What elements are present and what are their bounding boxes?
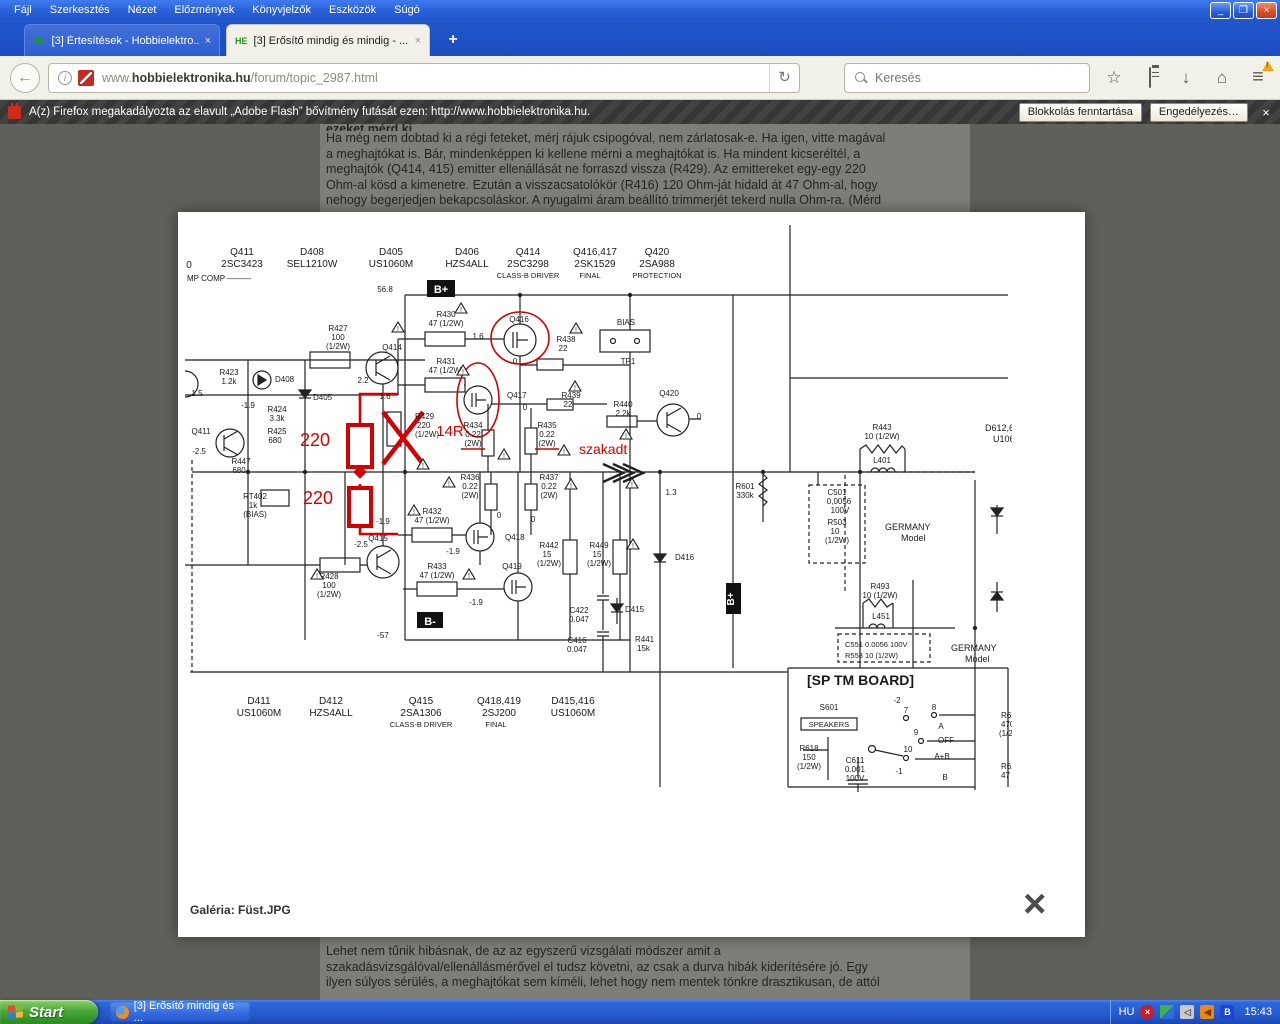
warning-badge-icon — [1262, 61, 1274, 71]
schematic-label: D612,6 — [985, 423, 1012, 433]
schematic-label: Q415 — [368, 534, 388, 543]
schematic-label: Q411 — [192, 427, 212, 436]
bluetooth-icon[interactable]: B — [1220, 1005, 1234, 1019]
schematic-label: B — [942, 773, 947, 782]
forum-text-top: ezeket mérd ki. Ha még nem dobtad ki a r… — [320, 124, 970, 212]
site-favicon-he: HE — [33, 36, 46, 46]
schematic-label: C551 0.0056 100V — [845, 640, 908, 649]
menu-item-2[interactable]: Szerkesztés — [42, 2, 118, 18]
bookmarks-sidebar-icon[interactable] — [1138, 68, 1162, 88]
notification-close-icon[interactable]: × — [1256, 105, 1276, 120]
schematic-label: Q418,419 — [477, 696, 521, 707]
schematic-label: (2W) — [540, 491, 558, 500]
forum-text-line: szakadásvizsgálóval/ellenállásmérővel el… — [326, 960, 970, 976]
language-indicator[interactable]: HU — [1119, 1006, 1135, 1018]
tab-title: [3] Értesítések - Hobbielektro... — [52, 35, 199, 47]
schematic-label: 3.3k — [269, 414, 285, 423]
toolbar-icons: ☆ ↓ ⌂ ≡ — [1102, 66, 1270, 89]
gallery-lightbox: 0Q4112SC3423MP COMP ———D408SEL1210WD405U… — [178, 212, 1085, 937]
schematic-label: CLASS-B DRIVER — [390, 720, 453, 729]
taskbar-clock: 15:43 — [1244, 1006, 1272, 1018]
schematic-label: Model — [965, 654, 990, 664]
schematic-label: R449 — [589, 541, 609, 550]
schematic-label: R438 — [556, 335, 576, 344]
schematic-label: 0 — [497, 511, 502, 520]
schematic-label: 220 — [300, 430, 330, 450]
schematic-label: 47 — [1001, 771, 1010, 780]
schematic-label: 0.22 — [539, 430, 555, 439]
bookmark-star-icon[interactable]: ☆ — [1102, 68, 1126, 88]
warning-glyph: ! — [625, 433, 627, 440]
lightbox-close-icon[interactable]: × — [1023, 884, 1046, 924]
close-window-button[interactable]: × — [1256, 2, 1277, 19]
task-label: [3] Erősítő mindig és ... — [134, 1000, 244, 1024]
schematic-label: (1/2W) — [587, 559, 611, 568]
schematic-label: -1.9 — [376, 517, 390, 526]
schematic-label: 220 — [303, 488, 333, 508]
allow-button[interactable]: Engedélyezés… — [1150, 103, 1248, 122]
schematic-label: 100 — [322, 581, 336, 590]
schematic-label: R433 — [427, 562, 447, 571]
schematic-label: Q411 — [230, 247, 254, 258]
schematic-label: 47 (1/2W) — [419, 571, 454, 580]
tab-title: [3] Erősítő mindig és mindig - ... — [254, 35, 409, 47]
schematic-label: 0 — [531, 515, 536, 524]
schematic-label: (1/2W) — [797, 762, 821, 771]
forum-text-line: Lehet nem tűnik hibásnak, de az az egysz… — [326, 944, 970, 960]
warning-glyph: ! — [462, 369, 464, 376]
schematic-label: Model — [901, 533, 926, 543]
hobbielektronika-favicon — [78, 70, 94, 86]
schematic-label: 100 — [331, 333, 345, 342]
schematic-label: D408 — [275, 375, 295, 384]
schematic-label: 2.2 — [357, 376, 369, 385]
schematic-label: Q420 — [645, 247, 670, 258]
schematic-label: 2SC3423 — [221, 259, 263, 270]
schematic-label: R443 — [872, 423, 892, 432]
schematic-label: FINAL — [579, 271, 600, 280]
schematic-label: -1.9 — [469, 598, 483, 607]
schematic-label: 0.001 — [845, 765, 866, 774]
volume-icon[interactable]: ◁ — [1180, 1005, 1194, 1019]
firefox-icon — [116, 1006, 129, 1019]
schematic-label: 0.047 — [567, 645, 588, 654]
speaker-icon[interactable]: ◀ — [1200, 1005, 1214, 1019]
gallery-caption: Galéria: Füst.JPG — [190, 903, 291, 917]
navigation-toolbar: ← i www.hobbielektronika.hu/forum/topic_… — [0, 56, 1280, 100]
warning-glyph: ! — [570, 483, 572, 490]
schematic-label: R493 — [870, 582, 890, 591]
tab-close-icon[interactable]: × — [205, 35, 211, 47]
security-alert-icon[interactable]: × — [1140, 1005, 1154, 1019]
warning-glyph: ! — [397, 326, 399, 333]
schematic-label: 0.22 — [541, 482, 557, 491]
search-icon — [855, 72, 867, 84]
tab-strip: HE [3] Értesítések - Hobbielektro... × H… — [0, 20, 1280, 56]
forum-text-line: nehogy begerjedjen bekapcsoláskor. A nyu… — [326, 193, 966, 209]
schematic-label: L401 — [873, 456, 891, 465]
minimize-button[interactable]: _ — [1210, 2, 1231, 19]
schematic-label: (1/2W) — [326, 342, 350, 351]
schematic-label: D408 — [300, 247, 324, 258]
page-info-icon[interactable]: i — [58, 71, 72, 85]
menu-item-1[interactable]: Fájl — [6, 2, 40, 18]
menu-item-4[interactable]: Előzmények — [166, 2, 242, 18]
plugin-notification-bar: A(z) Firefox megakadályozta az elavult „… — [0, 100, 1280, 124]
desktop: FájlSzerkesztésNézetElőzményekKönyvjelző… — [0, 0, 1280, 1024]
schematic-label: R428 — [319, 572, 339, 581]
warning-glyph: ! — [632, 543, 634, 550]
schematic-label: B- — [424, 616, 436, 628]
schematic-label: 0 — [186, 260, 192, 271]
schematic-label: TP1 — [621, 357, 636, 366]
schematic-label: R436 — [460, 473, 480, 482]
schematic-label: SEL1210W — [287, 259, 338, 270]
schematic-label: R425 — [267, 427, 287, 436]
back-button[interactable]: ← — [10, 63, 40, 93]
schematic-label: Q416 — [509, 315, 529, 324]
schematic-label: C611 — [846, 756, 865, 765]
schematic-label: R601 — [735, 482, 755, 491]
warning-glyph: ! — [574, 385, 576, 392]
notification-text: A(z) Firefox megakadályozta az elavult „… — [29, 106, 1019, 118]
schematic-label: 14R — [436, 423, 464, 440]
schematic-label: 1k — [249, 501, 258, 510]
new-tab-button[interactable]: + — [440, 28, 466, 52]
schematic-label: Q418 — [505, 533, 525, 542]
schematic-label: -1.9 — [446, 547, 460, 556]
schematic-label: (1/2 — [999, 729, 1012, 738]
menu-item-7[interactable]: Súgó — [386, 2, 428, 18]
warning-glyph: ! — [631, 482, 633, 489]
schematic-label: (2W) — [464, 439, 482, 448]
schematic-label: 47 (1/2W) — [428, 319, 463, 328]
schematic-label: SPEAKERS — [809, 720, 849, 729]
schematic-label: D405 — [379, 247, 403, 258]
search-input[interactable] — [873, 70, 1089, 86]
schematic-label: R437 — [539, 473, 559, 482]
schematic-label: US1060M — [369, 259, 413, 270]
schematic-label: R431 — [436, 357, 456, 366]
schematic-label: [SP TM BOARD] — [807, 672, 914, 688]
forum-text-line: Ha még nem dobtad ki a régi feteket, mér… — [326, 131, 966, 147]
schematic-label: D411 — [247, 696, 271, 707]
warning-glyph: ! — [413, 509, 415, 516]
schematic-label: R434 — [463, 421, 483, 430]
schematic-label: 1.2k — [221, 377, 237, 386]
schematic-label: -2.5 — [192, 447, 206, 456]
graphics-tray-icon[interactable] — [1160, 1005, 1174, 1019]
schematic-label: CLASS-B DRIVER — [497, 271, 560, 280]
schematic-label: HZS4ALL — [309, 708, 353, 719]
schematic-label: (1/2W) — [317, 590, 341, 599]
schematic-label: 2SK1529 — [574, 259, 616, 270]
schematic-label: 8 — [932, 703, 937, 712]
schematic-label: R553 10 (1/2W) — [845, 651, 898, 660]
forum-text-line: ilyen súlyos sérülés, a meghajtókat sem … — [326, 975, 970, 991]
schematic-label: A — [938, 722, 944, 731]
warning-glyph: ! — [448, 481, 450, 488]
schematic-label: 2.2k — [615, 409, 631, 418]
schematic-label: 10 (1/2W) — [862, 591, 897, 600]
warning-glyph: ! — [316, 573, 318, 580]
restore-button[interactable]: ❐ — [1233, 2, 1254, 19]
schematic-label: 2SA988 — [639, 259, 675, 270]
system-tray: HU × ◁ ◀ B 15:43 — [1110, 1000, 1280, 1024]
schematic-label: Q420 — [659, 389, 679, 398]
schematic-label: 0.22 — [465, 430, 481, 439]
schematic-label: BIAS — [617, 318, 635, 327]
warning-glyph: ! — [563, 449, 565, 456]
schematic-label: Q415 — [409, 696, 434, 707]
schematic-label: 56.8 — [377, 285, 393, 294]
schematic-label: R441 — [635, 635, 655, 644]
schematic-label: 220 — [417, 421, 431, 430]
url-bar[interactable]: i www.hobbielektronika.hu/forum/topic_29… — [48, 63, 800, 93]
schematic-label: 0.22 — [462, 482, 478, 491]
schematic-label: R432 — [422, 507, 442, 516]
forum-line-clipped: ezeket mérd ki. — [326, 124, 966, 131]
tab-erosito-active[interactable]: HE [3] Erősítő mindig és mindig - ... × — [226, 24, 430, 56]
schematic-label: D415 — [625, 605, 645, 614]
schematic-label: OFF — [938, 736, 954, 745]
schematic-label: C501 — [827, 488, 847, 497]
schematic-label: MP COMP ——— — [187, 274, 251, 283]
schematic-label: S601 — [820, 703, 839, 712]
schematic-label: 10 — [904, 745, 913, 754]
schematic-label: D405 — [313, 393, 333, 402]
warning-glyph: ! — [503, 453, 505, 460]
forum-text-line: meghajtók (Q414, 415) emitter ellenállás… — [326, 162, 966, 178]
warning-glyph: ! — [575, 327, 577, 334]
schematic-label: 0 — [523, 403, 528, 412]
schematic-label: 22 — [559, 344, 568, 353]
schematic-label: (2W) — [538, 439, 556, 448]
schematic-label: D406 — [455, 247, 479, 258]
schematic-label: 100V — [846, 774, 865, 783]
warning-glyph: ! — [468, 573, 470, 580]
schematic-label: 7 — [904, 706, 909, 715]
schematic-label: 47 (1/2W) — [414, 516, 449, 525]
schematic-label: 1.6 — [472, 332, 484, 341]
schematic-label: 10 (1/2W) — [864, 432, 899, 441]
schematic-label: R439 — [561, 391, 581, 400]
schematic-label: 0 — [697, 412, 702, 421]
schematic-label: -2.5 — [354, 540, 368, 549]
schematic-svg: 0Q4112SC3423MP COMP ———D408SEL1210WD405U… — [185, 222, 1012, 792]
schematic-image: 0Q4112SC3423MP COMP ———D408SEL1210WD405U… — [185, 222, 1012, 792]
schematic-label: -57 — [377, 631, 389, 640]
schematic-label: C416 — [567, 636, 587, 645]
windows-logo-icon — [8, 1004, 24, 1020]
menu-item-6[interactable]: Eszközök — [321, 2, 384, 18]
window-controls: _ ❐ × — [1210, 2, 1277, 19]
schematic-label: -1 — [895, 767, 903, 776]
schematic-label: Q419 — [502, 562, 522, 571]
schematic-label: -1.9 — [241, 401, 255, 410]
schematic-label: -2 — [893, 696, 901, 705]
schematic-label: 2SC3298 — [507, 259, 549, 270]
schematic-label: Q417 — [507, 391, 527, 400]
site-favicon-he: HE — [235, 36, 248, 46]
schematic-label: L451 — [872, 612, 890, 621]
schematic-label: R62 — [1001, 711, 1012, 720]
menu-bar: FájlSzerkesztésNézetElőzményekKönyvjelző… — [0, 2, 428, 18]
schematic-label: 9 — [914, 728, 919, 737]
schematic-label: US1060M — [237, 708, 281, 719]
schematic-label: 22 — [564, 400, 573, 409]
schematic-label: szakadt — [579, 441, 627, 457]
schematic-label: R503 — [827, 518, 847, 527]
schematic-label: R442 — [539, 541, 559, 550]
downloads-icon[interactable]: ↓ — [1174, 68, 1198, 88]
schematic-label: FINAL — [485, 720, 506, 729]
warning-glyph: ! — [460, 307, 462, 314]
schematic-label: A+B — [934, 752, 949, 761]
tab-close-icon[interactable]: × — [415, 35, 421, 47]
schematic-label: 680 — [268, 436, 282, 445]
menu-item-3[interactable]: Nézet — [120, 2, 165, 18]
schematic-label: GERMANY — [951, 643, 997, 653]
schematic-label: R62 — [1001, 762, 1012, 771]
schematic-label: B+ — [434, 284, 448, 296]
schematic-label: 10 — [831, 527, 840, 536]
schematic-label: GERMANY — [885, 522, 931, 532]
plugin-icon — [8, 106, 21, 119]
window-titlebar: FájlSzerkesztésNézetElőzményekKönyvjelző… — [0, 0, 1280, 20]
schematic-label: 470 — [1001, 720, 1012, 729]
schematic-label: R423 — [219, 368, 239, 377]
schematic-label: 1.5 — [191, 389, 203, 398]
schematic-label: R429 — [415, 412, 435, 421]
schematic-label: U1060 — [993, 434, 1012, 444]
schematic-label: US1060M — [551, 708, 595, 719]
keep-blocking-button[interactable]: Blokkolás fenntartása — [1019, 103, 1142, 122]
schematic-label: (BIAS) — [243, 510, 267, 519]
schematic-label: (1/2W) — [537, 559, 561, 568]
schematic-label: RT402 — [243, 492, 267, 501]
schematic-label: R424 — [267, 405, 287, 414]
schematic-label: HZS4ALL — [445, 259, 489, 270]
schematic-label: 2SJ200 — [482, 708, 516, 719]
taskbar: Start [3] Erősítő mindig és ... HU × ◁ ◀… — [0, 1000, 1280, 1024]
start-label: Start — [29, 1004, 63, 1021]
schematic-label: 150 — [802, 753, 816, 762]
url-text[interactable]: www.hobbielektronika.hu/forum/topic_2987… — [102, 71, 769, 85]
schematic-label: 0 — [513, 357, 518, 366]
schematic-label: 680 — [232, 466, 246, 475]
schematic-label: B+ — [726, 592, 737, 605]
schematic-label: R440 — [613, 400, 633, 409]
menu-item-5[interactable]: Könyvjelzők — [244, 2, 319, 18]
schematic-label: D416 — [675, 553, 695, 562]
forum-text-line: a meghajtókat is. Bár, mindenképpen ki k… — [326, 147, 966, 163]
schematic-label: R618 — [799, 744, 819, 753]
taskbar-firefox-task[interactable]: [3] Erősítő mindig és ... — [110, 1002, 250, 1022]
schematic-label: Q414 — [516, 247, 541, 258]
schematic-label: PROTECTION — [632, 271, 681, 280]
schematic-label: 1.6 — [379, 392, 391, 401]
schematic-label: 330k — [736, 491, 754, 500]
schematic-label: 2SA1306 — [400, 708, 442, 719]
schematic-label: R435 — [537, 421, 557, 430]
hamburger-menu-icon[interactable]: ≡ — [1246, 66, 1270, 89]
schematic-label: 0,0056 — [827, 497, 852, 506]
schematic-label: R427 — [328, 324, 348, 333]
tab-ertesitesek[interactable]: HE [3] Értesítések - Hobbielektro... × — [24, 24, 220, 56]
start-button[interactable]: Start — [0, 1000, 98, 1024]
schematic-label: 100V — [831, 506, 850, 515]
schematic-label: 15 — [543, 550, 552, 559]
schematic-label: R447 — [231, 457, 251, 466]
reload-icon[interactable]: ↻ — [769, 64, 799, 92]
schematic-label: D415,416 — [551, 696, 595, 707]
schematic-label: (2W) — [461, 491, 479, 500]
schematic-label: 15 — [593, 550, 602, 559]
forum-text-line: Ohm-al kösd a kimenetre. Ezután a vissza… — [326, 178, 966, 194]
forum-text-bottom: Lehet nem tűnik hibásnak, de az az egysz… — [320, 937, 970, 1004]
search-box[interactable] — [844, 63, 1090, 93]
schematic-label: Q414 — [382, 343, 402, 352]
schematic-label: 15k — [637, 644, 651, 653]
schematic-label: Q416,417 — [573, 247, 617, 258]
schematic-label: 1.3 — [665, 488, 677, 497]
schematic-label: D412 — [319, 696, 343, 707]
schematic-label: 0.047 — [569, 615, 590, 624]
schematic-label: C422 — [569, 606, 589, 615]
home-icon[interactable]: ⌂ — [1210, 68, 1234, 88]
warning-glyph: ! — [422, 463, 424, 470]
schematic-label: (1/2W) — [825, 536, 849, 545]
schematic-label: R430 — [436, 310, 456, 319]
